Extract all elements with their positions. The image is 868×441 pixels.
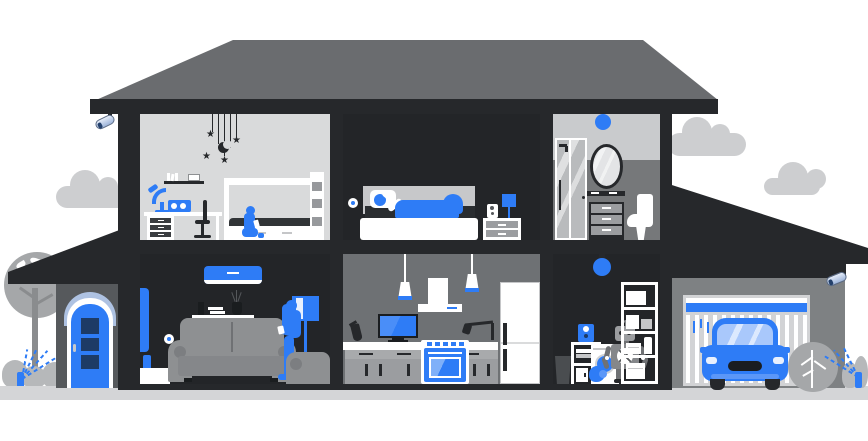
- blanket-feet: [443, 194, 463, 214]
- smart-home-illustration: ★ ★ ★ ★: [0, 0, 868, 441]
- shower-cabin: [555, 138, 587, 240]
- child-with-phone: [240, 206, 264, 240]
- speaker-blue: [578, 324, 594, 342]
- trash-bin: [555, 356, 571, 384]
- kitchen: [343, 254, 540, 384]
- faucet: [463, 318, 497, 342]
- bunk-bed: [224, 172, 324, 240]
- oval-mirror: [590, 144, 623, 189]
- toilet: [627, 194, 655, 240]
- car-headlight: [706, 357, 717, 364]
- nightstand: [483, 218, 521, 240]
- wall-shelf-decor: [192, 294, 254, 320]
- vanity-cabinet: [589, 202, 624, 240]
- star-icon: ★: [202, 152, 211, 162]
- sprinkler-right: [855, 372, 862, 388]
- laundry-room: [553, 254, 660, 384]
- media-console: [140, 368, 170, 384]
- refrigerator: [500, 282, 540, 384]
- oven: [421, 340, 469, 384]
- vanity-shelf: [587, 191, 625, 196]
- air-conditioner: [204, 266, 262, 284]
- garage-door-stripe: [686, 303, 807, 312]
- car: [702, 318, 788, 390]
- living-room: [140, 254, 330, 384]
- star-icon: ★: [232, 136, 241, 146]
- cctv-camera-garage-icon: [824, 268, 852, 292]
- cctv-camera-left-icon: [94, 111, 120, 133]
- roof-fascia: [90, 99, 718, 114]
- car-headlight: [773, 357, 784, 364]
- bed-base: [360, 218, 478, 240]
- garage-roof: [650, 176, 868, 280]
- storage-shelf: [621, 282, 658, 384]
- desk-drawers: [147, 216, 174, 240]
- bathroom: [553, 114, 660, 240]
- armchair: [286, 352, 330, 384]
- table-lamp: [501, 194, 517, 218]
- bedroom: [343, 114, 540, 240]
- kettle: [349, 322, 365, 342]
- desk-lamp-icon: [146, 186, 168, 214]
- office-chair: [188, 200, 212, 240]
- star-icon: ★: [220, 156, 229, 166]
- main-roof: [96, 40, 718, 100]
- tv-side-view: [140, 288, 149, 352]
- car-wheel: [765, 379, 780, 390]
- smart-wall-device: [348, 198, 358, 208]
- kids-room: ★ ★ ★ ★: [140, 114, 330, 240]
- smart-bulb: [593, 258, 611, 276]
- countertop-tv: [378, 314, 418, 342]
- car-wheel: [710, 379, 725, 390]
- range-hood: [428, 278, 448, 304]
- car-grille: [728, 361, 762, 371]
- smart-ceiling-light: [595, 114, 611, 130]
- star-icon: ★: [206, 130, 215, 140]
- cloud-right-large: [668, 133, 746, 156]
- car-windshield: [717, 324, 773, 346]
- speaker: [487, 204, 498, 218]
- bush: [42, 362, 68, 388]
- wall-shelf: [164, 172, 204, 184]
- shrub-right: [788, 342, 838, 392]
